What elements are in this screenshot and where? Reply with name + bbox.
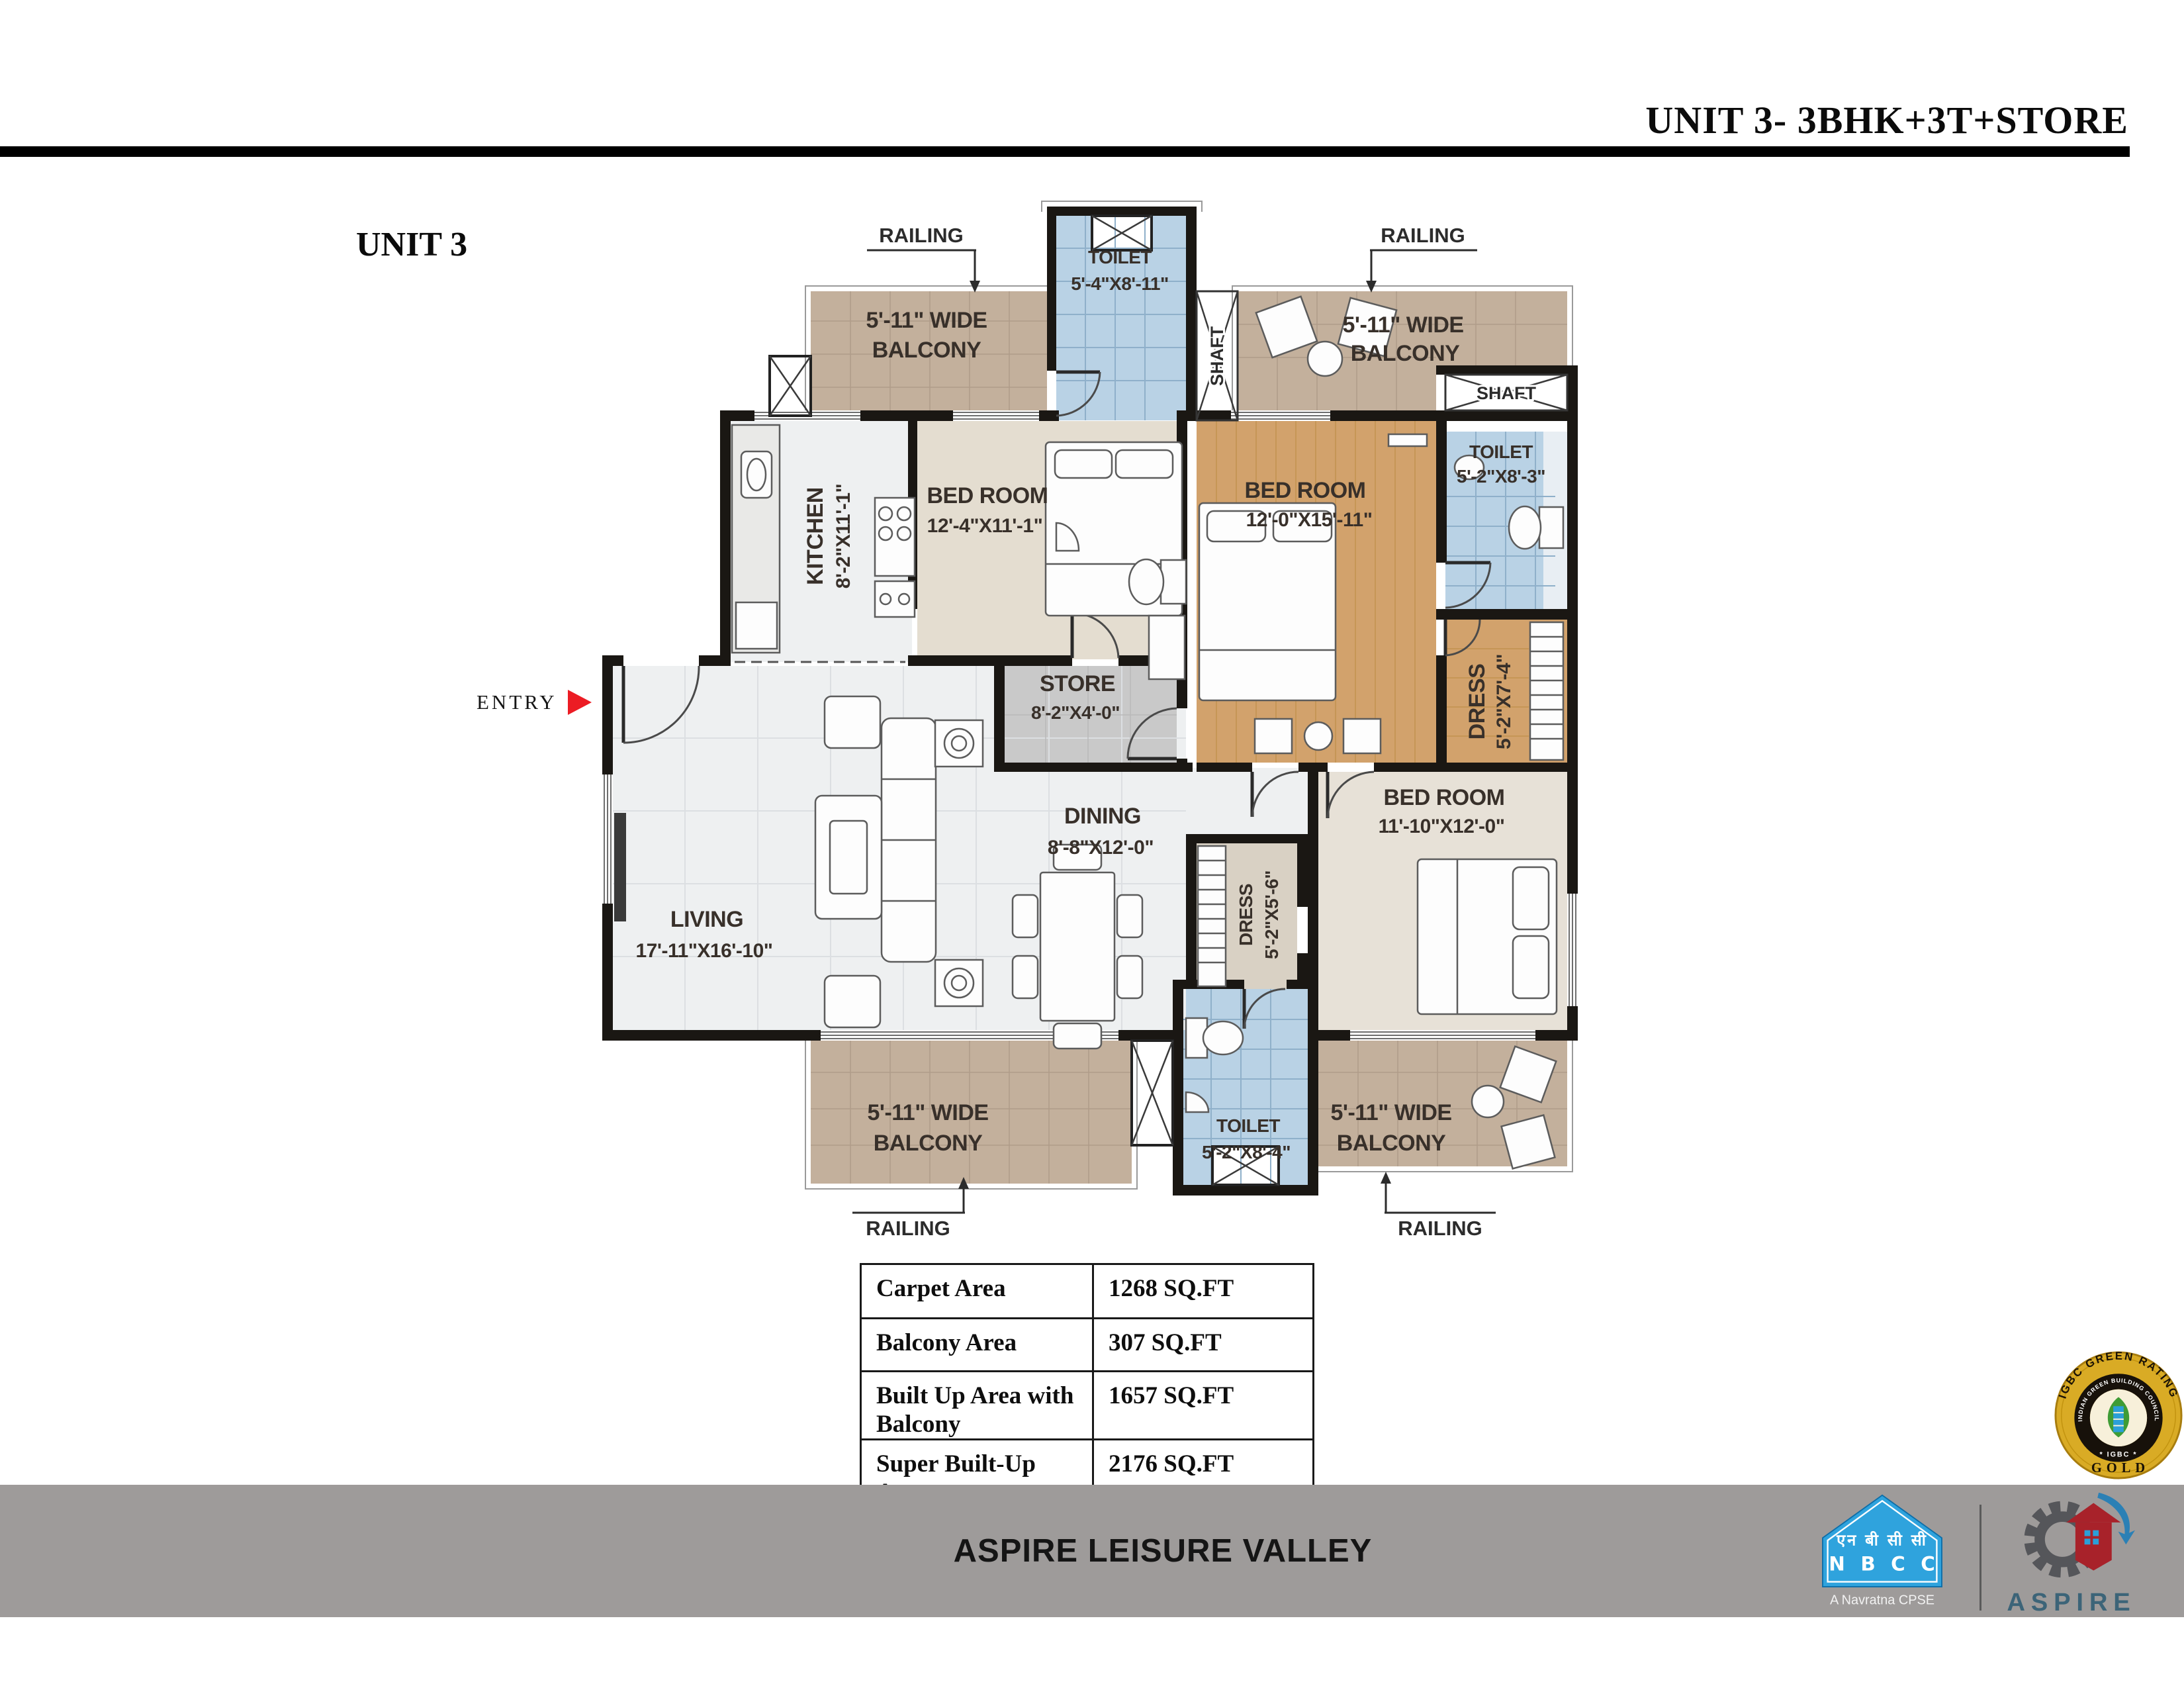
- dress-right-dim: 5'-2"X7'-4": [1493, 654, 1515, 749]
- railing-label-bottom-right: RAILING: [1398, 1217, 1482, 1238]
- toilet-right-label: TOILET: [1469, 442, 1533, 462]
- bedroom-top-right-dim: 12'-0"X15'-11": [1246, 509, 1373, 531]
- balcony-top-right-line2: BALCONY: [1351, 341, 1460, 366]
- aspire-wordmark: ASPIRE: [2007, 1588, 2136, 1617]
- bedroom-top-left-dim: 12'-4"X11'-1": [927, 515, 1043, 537]
- area-label: Carpet Area: [861, 1264, 1093, 1319]
- project-name: ASPIRE LEISURE VALLEY: [954, 1532, 1373, 1570]
- shaft-right-label: SHAFT: [1477, 383, 1536, 403]
- toilet-bottom-dim: 5'-2"X8'-4": [1202, 1142, 1291, 1162]
- toilet-right-dim: 5'-2"X8'-3": [1457, 466, 1545, 487]
- bedroom-top-right-label: BED ROOM: [1245, 478, 1366, 503]
- railing-label-top-left: RAILING: [879, 224, 963, 247]
- area-value: 307 SQ.FT: [1093, 1319, 1314, 1372]
- badge-igbc-text: * IGBC *: [2100, 1451, 2138, 1459]
- bedroom-right-label: BED ROOM: [1384, 785, 1505, 810]
- dress-right-label: DRESS: [1465, 664, 1490, 740]
- balcony-bottom-left-line2: BALCONY: [874, 1131, 983, 1156]
- table-row: Built Up Area with Balcony 1657 SQ.FT: [861, 1372, 1314, 1440]
- balcony-top-right-line1: 5'-11" WIDE: [1342, 312, 1463, 338]
- nbcc-acronym: N B C C: [1829, 1552, 1939, 1575]
- living-label: LIVING: [670, 907, 743, 932]
- bedroom-right-dim: 11'-10"X12'-0": [1379, 816, 1505, 837]
- bed-right: [1418, 859, 1557, 1014]
- table-row: Carpet Area 1268 SQ.FT: [861, 1264, 1314, 1319]
- nbcc-logo: एन बी सी सी N B C C A Navratna CPSE: [1813, 1493, 1951, 1612]
- shaft-top-label: SHAFT: [1207, 326, 1227, 386]
- dress-mid-dim: 5'-2"X5'-6": [1261, 870, 1282, 959]
- page-title: UNIT 3- 3BHK+3T+STORE: [1645, 98, 2128, 142]
- balcony-bottom-right-line2: BALCONY: [1337, 1131, 1446, 1156]
- igbc-gold-badge: IGBC GREEN RATING INDIAN GREEN BUILDING …: [2054, 1350, 2183, 1480]
- dress-mid-label: DRESS: [1236, 884, 1256, 946]
- toilet-top-label: TOILET: [1088, 247, 1152, 267]
- footer-logo-divider: [1979, 1505, 1981, 1611]
- bedroom-top-left-label: BED ROOM: [927, 483, 1048, 508]
- toilet-top-dim: 5'-4"X8'-11": [1071, 273, 1169, 294]
- balcony-bottom-right-line1: 5'-11" WIDE: [1330, 1100, 1451, 1125]
- title-underline-bar: [0, 146, 2130, 157]
- table-row: Balcony Area 307 SQ.FT: [861, 1319, 1314, 1372]
- area-table: Carpet Area 1268 SQ.FT Balcony Area 307 …: [860, 1263, 1314, 1509]
- brochure-page: UNIT 3- 3BHK+3T+STORE UNIT 3 ENTRY: [0, 0, 2184, 1688]
- dining-dim: 8'-8"X12'-0": [1048, 837, 1154, 859]
- railing-label-top-right: RAILING: [1381, 224, 1465, 247]
- store-label: STORE: [1040, 671, 1115, 696]
- balcony-bottom-left-line1: 5'-11" WIDE: [867, 1100, 988, 1125]
- toilet-bottom-label: TOILET: [1216, 1115, 1280, 1136]
- balcony-top-left-line1: 5'-11" WIDE: [866, 308, 987, 333]
- railing-label-bottom-left: RAILING: [866, 1217, 950, 1238]
- dining-label: DINING: [1064, 804, 1141, 829]
- kitchen-label: KITCHEN: [803, 487, 828, 585]
- floor-plan: RAILING RAILING RAILING RAILING TOILET 5…: [582, 192, 1615, 1238]
- kitchen-dim: 8'-2"X11'-1": [833, 484, 854, 588]
- area-value: 1657 SQ.FT: [1093, 1372, 1314, 1440]
- living-dim: 17'-11"X16'-10": [635, 940, 772, 962]
- entry-marker: ENTRY: [477, 690, 592, 715]
- nbcc-hindi-text: एन बी सी सी: [1836, 1531, 1928, 1550]
- balcony-top-left-line2: BALCONY: [872, 338, 981, 363]
- entry-label: ENTRY: [477, 690, 557, 714]
- area-label: Built Up Area with Balcony: [861, 1372, 1093, 1440]
- badge-rating-text: GOLD: [2091, 1461, 2150, 1476]
- store-dim: 8'-2"X4'-0": [1031, 702, 1120, 723]
- area-label: Balcony Area: [861, 1319, 1093, 1372]
- footer-bar: ASPIRE LEISURE VALLEY एन बी सी सी N B C …: [0, 1485, 2184, 1617]
- nbcc-tagline: A Navratna CPSE: [1830, 1593, 1934, 1608]
- unit-label: UNIT 3: [356, 225, 467, 264]
- aspire-logo: ASPIRE: [2001, 1487, 2142, 1617]
- area-value: 1268 SQ.FT: [1093, 1264, 1314, 1319]
